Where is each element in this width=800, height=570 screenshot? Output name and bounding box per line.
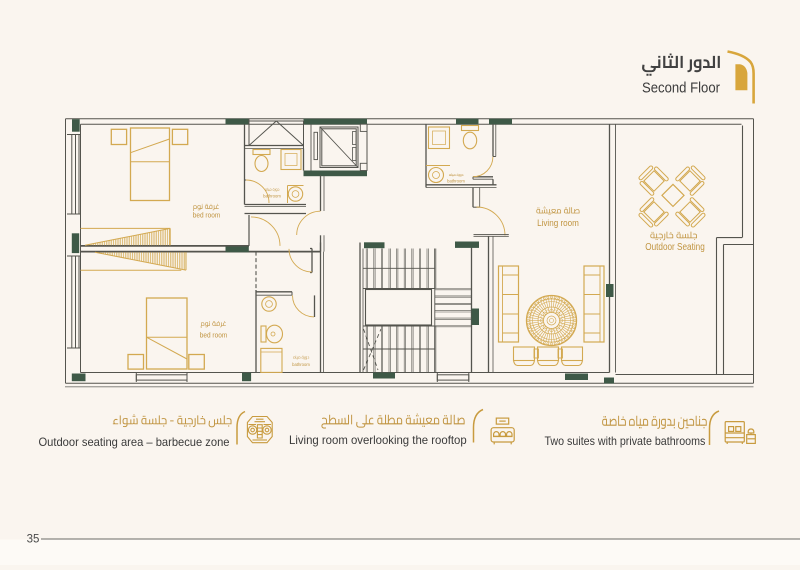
svg-text:Second Floor: Second Floor <box>642 81 720 97</box>
svg-text:35: 35 <box>27 534 40 546</box>
svg-text:Outdoor Seating: Outdoor Seating <box>645 242 705 253</box>
svg-text:bathroom: bathroom <box>447 179 465 184</box>
svg-text:Two suites with private bathro: Two suites with private bathrooms <box>545 434 706 448</box>
svg-text:bed room: bed room <box>193 211 221 220</box>
svg-text:Outdoor seating area – barbecu: Outdoor seating area – barbecue zone <box>39 435 230 449</box>
svg-text:bathroom: bathroom <box>263 194 281 199</box>
svg-text:Living room: Living room <box>537 218 579 228</box>
svg-text:Living room overlooking the ro: Living room overlooking the rooftop <box>289 433 467 447</box>
svg-text:bathroom: bathroom <box>292 362 310 367</box>
svg-text:bed room: bed room <box>200 330 228 339</box>
